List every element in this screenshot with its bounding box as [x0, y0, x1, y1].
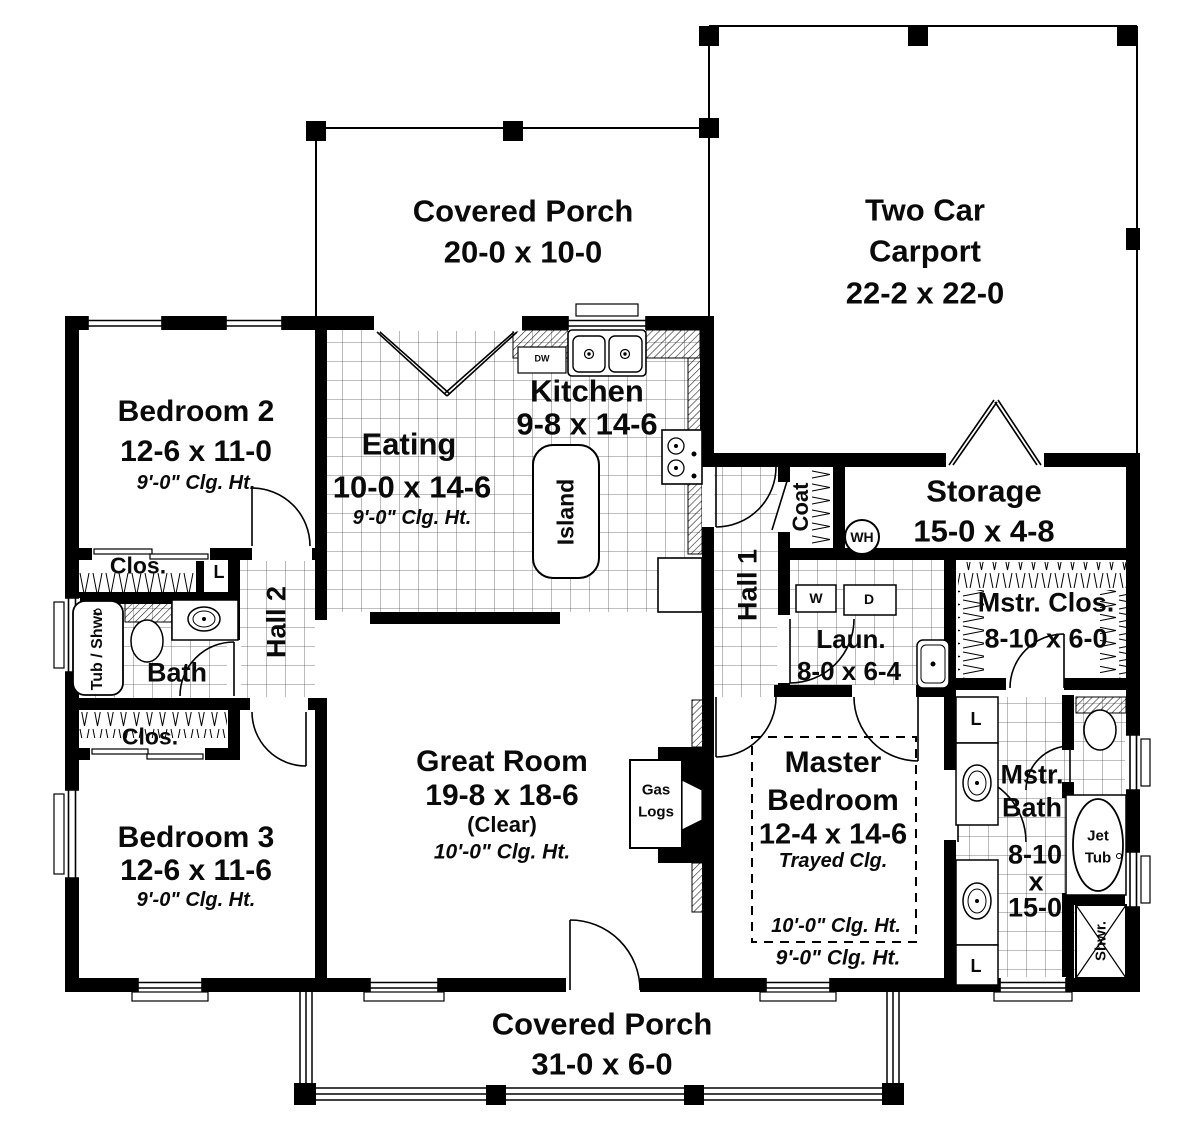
- hall1-greatroom-door: [716, 697, 776, 757]
- label-clos-bed3: Clos.: [122, 726, 178, 749]
- label-porch-top-name: Covered Porch: [413, 196, 634, 227]
- label-linen-top: L: [971, 710, 982, 728]
- label-bedroom2-name: Bedroom 2: [118, 397, 275, 427]
- bath-toilet: [131, 620, 163, 662]
- bath-vanity: [172, 600, 238, 640]
- label-great-room-name: Great Room: [416, 747, 588, 777]
- label-master-tray: Trayed Clg.: [779, 851, 888, 871]
- bedroom3-door: [252, 712, 306, 766]
- label-tub-shwr: Tub / Shwr: [90, 610, 106, 691]
- label-gas-logs-line1: Gas: [642, 783, 670, 798]
- utility-sink: [917, 640, 949, 688]
- label-coat: Coat: [790, 483, 812, 532]
- label-porch-bottom-dims: 31-0 x 6-0: [531, 1049, 672, 1080]
- label-jet-tub-line1: Jet: [1087, 829, 1109, 844]
- label-eating-name: Eating: [362, 429, 457, 460]
- label-bath: Bath: [147, 660, 207, 687]
- jet-tub-shape: [1073, 799, 1123, 891]
- label-mstr-bath-dim1: 8-10: [1008, 842, 1062, 869]
- master-toilet: [1084, 710, 1116, 750]
- bedroom2-door: [252, 488, 310, 546]
- label-great-room-dims: 19-8 x 18-6: [425, 781, 578, 811]
- label-eating-clg: 9'-0" Clg. Ht.: [353, 508, 472, 528]
- label-bedroom2-clg: 9'-0" Clg. Ht.: [137, 473, 256, 493]
- label-master-clg-inner: 10'-0" Clg. Ht.: [771, 916, 901, 936]
- label-dryer: D: [864, 592, 874, 606]
- label-mstr-bath-dim2: x: [1028, 869, 1043, 896]
- label-great-room-clear: (Clear): [467, 814, 537, 836]
- label-linen-hall2: L: [214, 563, 225, 581]
- label-mstr-bath-line1: Mstr.: [1000, 762, 1063, 789]
- label-bedroom3-clg: 9'-0" Clg. Ht.: [137, 890, 256, 910]
- label-porch-top-dims: 20-0 x 10-0: [444, 237, 603, 268]
- label-master-line1: Master: [785, 748, 882, 778]
- label-master-clg-outer: 9'-0" Clg. Ht.: [776, 948, 901, 969]
- label-eating-dims: 10-0 x 14-6: [333, 472, 492, 503]
- label-carport-line2: Carport: [869, 236, 981, 267]
- refrigerator: [658, 558, 702, 612]
- label-master-line2: Bedroom: [767, 786, 899, 816]
- label-dishwasher: DW: [535, 355, 550, 364]
- label-great-room-clg: 10'-0" Clg. Ht.: [434, 842, 570, 863]
- label-hall2: Hall 2: [264, 586, 291, 658]
- label-gas-logs-line2: Logs: [638, 805, 674, 820]
- label-mstr-bath-line2: Bath: [1002, 795, 1062, 822]
- label-storage-name: Storage: [926, 476, 1041, 507]
- label-laundry-dims: 8-0 x 6-4: [797, 658, 901, 684]
- label-water-heater: WH: [850, 530, 873, 544]
- label-kitchen-name: Kitchen: [530, 376, 644, 407]
- label-porch-bottom-name: Covered Porch: [492, 1009, 713, 1040]
- label-bedroom3-name: Bedroom 3: [118, 823, 275, 853]
- label-hall1: Hall 1: [735, 549, 762, 621]
- label-mstr-clos-name: Mstr. Clos.: [978, 590, 1115, 617]
- label-kitchen-dims: 9-8 x 14-6: [516, 409, 657, 440]
- label-mstr-clos-dims: 8-10 x 6-0: [984, 626, 1107, 653]
- floor-plan-drawing: [0, 0, 1200, 1127]
- kitchen-sink: [568, 330, 646, 376]
- label-shower: Shwr.: [1094, 921, 1109, 961]
- stove: [662, 430, 702, 484]
- label-carport-dims: 22-2 x 22-0: [846, 278, 1005, 309]
- label-carport-line1: Two Car: [865, 195, 985, 226]
- label-mstr-bath-dim3: 15-0: [1008, 895, 1062, 922]
- label-master-dims: 12-4 x 14-6: [759, 821, 907, 850]
- label-linen-bottom: L: [971, 957, 982, 975]
- label-clos-bed2: Clos.: [110, 555, 166, 578]
- label-bedroom2-dims: 12-6 x 11-0: [120, 437, 272, 467]
- floor-plan: Covered Porch 20-0 x 10-0 Two Car Carpor…: [0, 0, 1200, 1127]
- label-laundry-name: Laun.: [816, 626, 885, 652]
- label-jet-tub-line2: Tub: [1085, 851, 1111, 866]
- label-bedroom3-dims: 12-6 x 11-6: [120, 856, 272, 886]
- label-washer: W: [809, 591, 822, 605]
- label-island: Island: [555, 479, 578, 545]
- label-storage-dims: 15-0 x 4-8: [913, 516, 1054, 547]
